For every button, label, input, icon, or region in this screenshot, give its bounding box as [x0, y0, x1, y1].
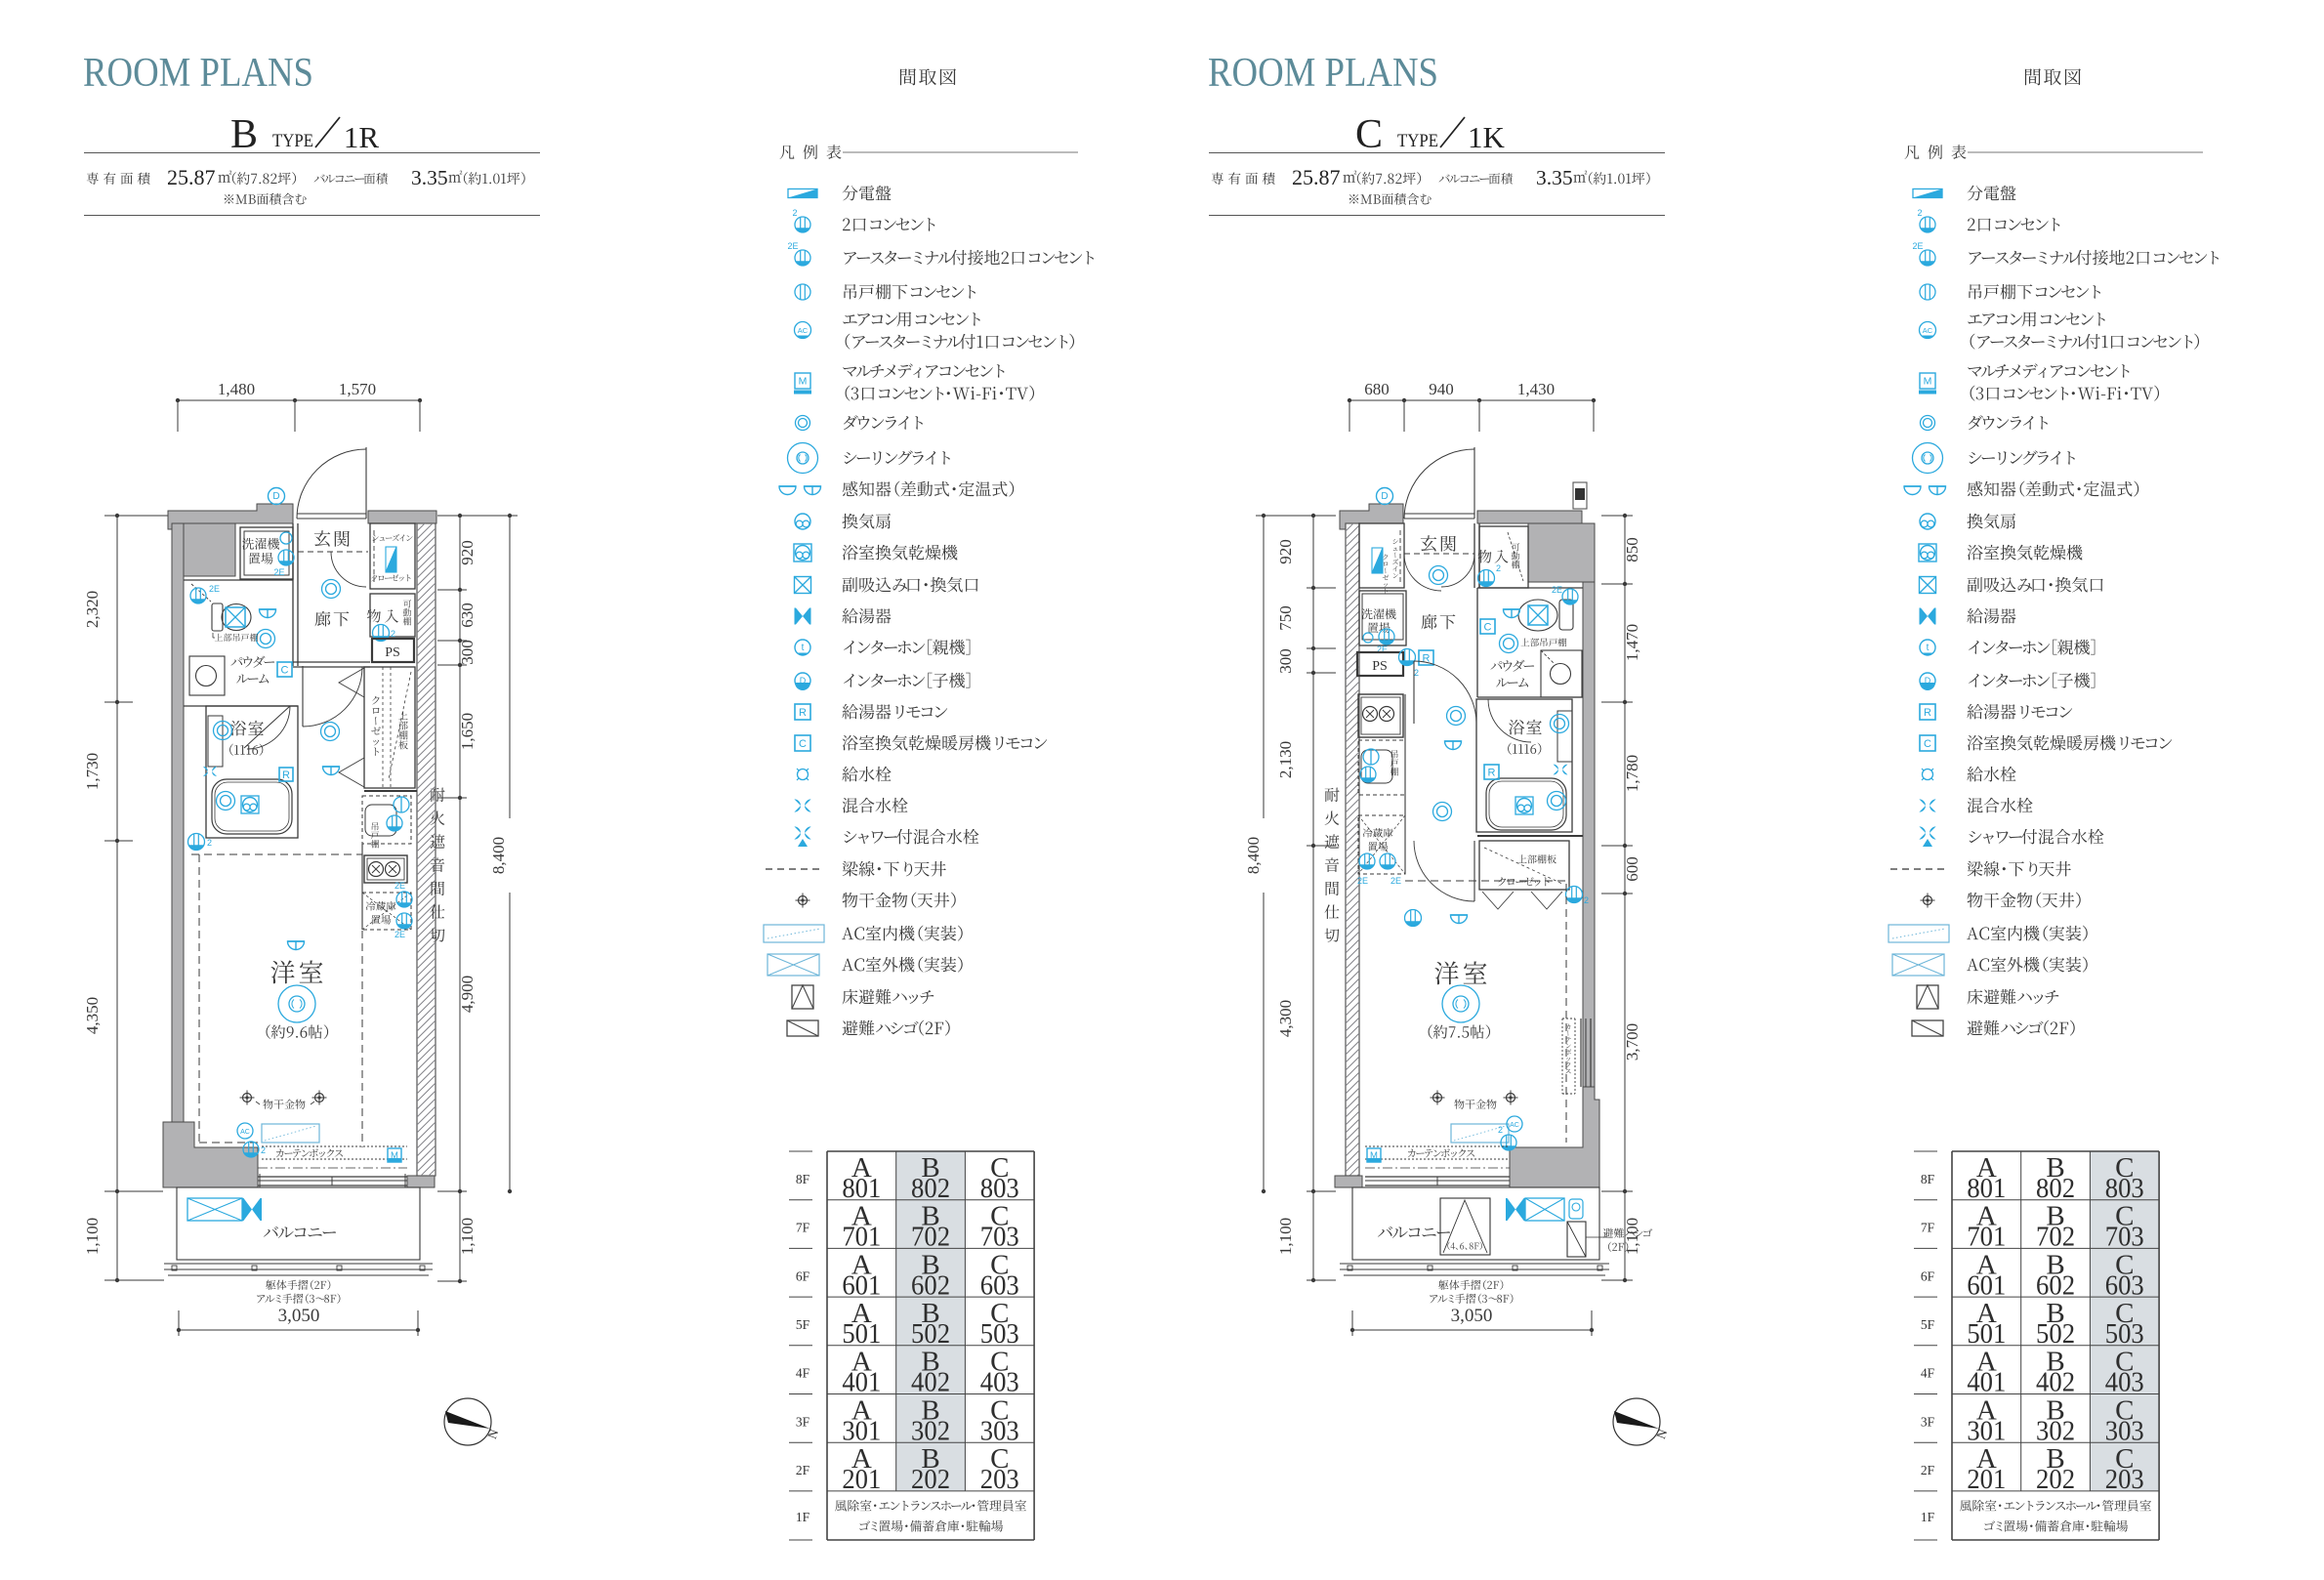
svg-text:2F: 2F [1921, 1463, 1935, 1477]
svg-text:940: 940 [1429, 380, 1454, 398]
svg-text:1F: 1F [1921, 1510, 1935, 1524]
svg-text:B: B [230, 112, 258, 157]
svg-text:920: 920 [458, 540, 477, 565]
svg-text:ROOM PLANS: ROOM PLANS [1208, 51, 1438, 96]
svg-text:2E: 2E [787, 241, 798, 251]
svg-text:AC: AC [798, 326, 809, 335]
svg-text:502: 502 [911, 1319, 950, 1350]
svg-text:D: D [800, 676, 807, 686]
svg-text:4,300: 4,300 [1276, 1000, 1295, 1037]
svg-text:1,730: 1,730 [83, 753, 102, 790]
svg-text:AC: AC [240, 1129, 250, 1136]
svg-text:2E: 2E [273, 567, 284, 577]
svg-text:1F: 1F [796, 1510, 810, 1524]
svg-text:1K: 1K [1468, 120, 1506, 154]
svg-text:t: t [802, 643, 805, 653]
svg-text:M: M [799, 376, 808, 388]
svg-text:1,650: 1,650 [458, 713, 477, 750]
svg-text:1,780: 1,780 [1623, 755, 1641, 792]
svg-text:680: 680 [1364, 380, 1390, 398]
svg-text:501: 501 [842, 1319, 881, 1350]
svg-text:2,320: 2,320 [83, 591, 102, 628]
svg-text:TYPE: TYPE [1397, 131, 1438, 151]
svg-text:750: 750 [1276, 605, 1295, 631]
svg-text:M: M [1924, 376, 1932, 388]
svg-text:C: C [1355, 112, 1383, 157]
svg-text:AC: AC [1510, 1122, 1519, 1129]
svg-text:TYPE: TYPE [272, 131, 313, 151]
svg-text:2E: 2E [1912, 241, 1923, 251]
svg-text:2: 2 [792, 208, 797, 218]
svg-text:R: R [799, 707, 807, 719]
svg-text:1,100: 1,100 [1623, 1218, 1641, 1255]
svg-text:3F: 3F [796, 1414, 810, 1429]
svg-text:300: 300 [458, 640, 477, 665]
svg-text:4F: 4F [1921, 1366, 1935, 1381]
svg-text:2F: 2F [796, 1463, 810, 1477]
svg-text:4,900: 4,900 [458, 976, 477, 1013]
svg-text:2E: 2E [394, 881, 405, 891]
svg-text:2: 2 [1584, 895, 1589, 905]
svg-text:t: t [1927, 643, 1930, 653]
svg-text:8,400: 8,400 [489, 837, 508, 874]
svg-text:C: C [1484, 621, 1492, 633]
svg-text:2E: 2E [1390, 876, 1401, 886]
svg-text:C: C [799, 738, 807, 750]
svg-text:3.35: 3.35 [1536, 166, 1573, 189]
svg-text:8,400: 8,400 [1244, 837, 1263, 874]
svg-text:503: 503 [2105, 1319, 2144, 1350]
svg-text:2,130: 2,130 [1276, 741, 1295, 778]
svg-text:300: 300 [1276, 648, 1295, 674]
svg-text:ROOM PLANS: ROOM PLANS [83, 51, 313, 96]
svg-text:25.87: 25.87 [167, 165, 216, 189]
svg-text:R: R [1924, 707, 1931, 719]
svg-text:PS: PS [385, 645, 400, 660]
svg-text:630: 630 [458, 603, 477, 628]
svg-text:2E: 2E [1357, 876, 1368, 886]
svg-text:1,470: 1,470 [1623, 624, 1641, 661]
svg-text:2: 2 [207, 838, 212, 848]
svg-text:4F: 4F [796, 1366, 810, 1381]
svg-text:C: C [1924, 738, 1931, 750]
svg-text:2: 2 [1498, 1125, 1503, 1135]
svg-text:3.35: 3.35 [411, 166, 448, 189]
svg-text:D: D [272, 491, 279, 502]
svg-text:600: 600 [1623, 856, 1641, 882]
svg-text:R: R [282, 769, 290, 781]
svg-text:4,350: 4,350 [83, 997, 102, 1034]
svg-text:7F: 7F [796, 1221, 810, 1235]
svg-text:1,100: 1,100 [83, 1218, 102, 1255]
svg-text:2E: 2E [209, 584, 220, 594]
svg-text:6F: 6F [796, 1268, 810, 1283]
svg-text:1,430: 1,430 [1517, 380, 1555, 398]
svg-text:501: 501 [1967, 1319, 2006, 1350]
svg-text:C: C [281, 664, 289, 676]
svg-text:5F: 5F [796, 1317, 810, 1332]
svg-text:7F: 7F [1921, 1221, 1935, 1235]
svg-text:PS: PS [1372, 659, 1388, 674]
svg-text:AC: AC [1923, 326, 1933, 335]
svg-text:5F: 5F [1921, 1317, 1935, 1332]
svg-text:3,050: 3,050 [1451, 1306, 1493, 1326]
svg-text:2: 2 [1414, 668, 1419, 678]
svg-text:8F: 8F [796, 1172, 810, 1186]
svg-text:6F: 6F [1921, 1268, 1935, 1283]
svg-text:502: 502 [2036, 1319, 2075, 1350]
svg-text:2: 2 [391, 629, 395, 639]
svg-text:920: 920 [1276, 539, 1295, 564]
svg-text:3F: 3F [1921, 1414, 1935, 1429]
svg-text:3,700: 3,700 [1623, 1023, 1641, 1060]
svg-text:1,100: 1,100 [1276, 1218, 1295, 1255]
svg-text:1,100: 1,100 [458, 1218, 477, 1255]
svg-text:850: 850 [1623, 537, 1641, 562]
svg-text:2: 2 [261, 1145, 266, 1155]
svg-text:25.87: 25.87 [1292, 165, 1341, 189]
svg-text:D: D [1925, 676, 1931, 686]
svg-text:1,570: 1,570 [339, 380, 376, 398]
svg-text:D: D [1381, 491, 1388, 502]
svg-text:1R: 1R [344, 120, 380, 154]
svg-text:8F: 8F [1921, 1172, 1935, 1186]
svg-text:503: 503 [980, 1319, 1019, 1350]
svg-text:R: R [1488, 767, 1496, 778]
svg-text:2E: 2E [1552, 585, 1562, 595]
svg-text:2: 2 [1496, 563, 1501, 573]
svg-text:3,050: 3,050 [278, 1306, 320, 1326]
svg-text:2E: 2E [394, 930, 405, 939]
svg-text:2: 2 [1917, 208, 1922, 218]
svg-text:1,480: 1,480 [218, 380, 255, 398]
